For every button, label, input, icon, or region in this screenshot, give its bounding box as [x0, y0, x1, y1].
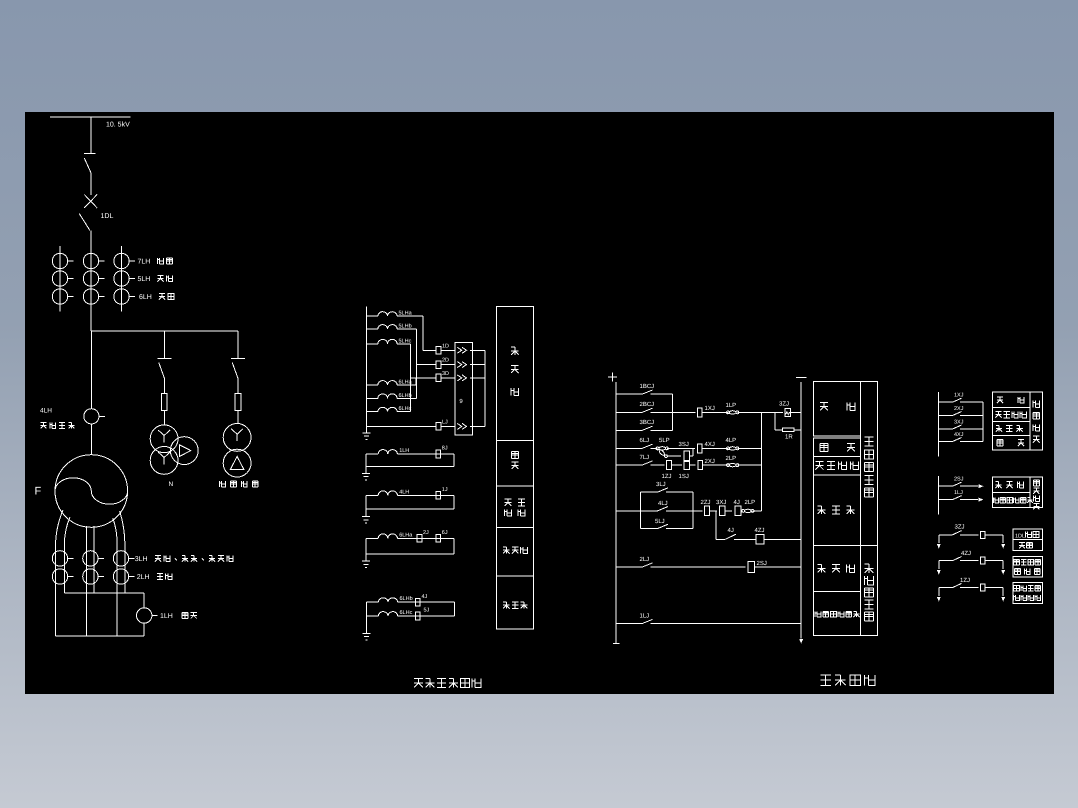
svg-text:6LJ: 6LJ: [640, 437, 650, 444]
svg-text:LJ: LJ: [442, 419, 448, 425]
svg-text:6LHa: 6LHa: [399, 380, 413, 386]
svg-text:7LJ: 7LJ: [640, 454, 650, 461]
svg-text:1ZJ: 1ZJ: [662, 473, 672, 480]
svg-text:4LP: 4LP: [726, 437, 737, 444]
svg-text:6LHb: 6LHb: [399, 393, 412, 399]
svg-text:3XJ: 3XJ: [954, 420, 964, 426]
svg-text:6LHc: 6LHc: [400, 610, 413, 616]
svg-text:5LP: 5LP: [659, 437, 670, 444]
svg-text:6J: 6J: [442, 530, 448, 536]
svg-text:6LHb: 6LHb: [400, 596, 413, 602]
svg-text:1BCJ: 1BCJ: [640, 383, 655, 390]
svg-text:2D: 2D: [442, 358, 449, 364]
svg-text:1LJ: 1LJ: [954, 490, 963, 496]
svg-text:5LHc: 5LHc: [399, 338, 412, 344]
svg-text:4ZJ: 4ZJ: [755, 527, 765, 534]
svg-text:3BCJ: 3BCJ: [640, 419, 655, 426]
svg-text:2XJ: 2XJ: [705, 458, 715, 465]
svg-text:3ZJ: 3ZJ: [779, 401, 789, 408]
svg-text:4ZJ: 4ZJ: [961, 550, 971, 557]
svg-text:2LP: 2LP: [745, 499, 756, 506]
svg-text:6LH: 6LH: [139, 294, 152, 301]
svg-text:2ZJ: 2ZJ: [701, 499, 711, 506]
svg-text:1LH: 1LH: [399, 448, 409, 454]
svg-text:6LHc: 6LHc: [399, 406, 412, 412]
svg-text:1ZJ: 1ZJ: [960, 577, 970, 584]
svg-text:2LP: 2LP: [726, 455, 737, 462]
svg-text:1SJ: 1SJ: [679, 473, 689, 480]
svg-text:9: 9: [459, 398, 463, 405]
svg-text:3LH: 3LH: [135, 556, 148, 563]
svg-text:2LH: 2LH: [137, 574, 150, 581]
svg-text:F: F: [35, 486, 42, 498]
svg-text:1LJ: 1LJ: [640, 612, 650, 619]
svg-text:4LH: 4LH: [40, 408, 52, 415]
svg-text:2SJ: 2SJ: [954, 477, 964, 483]
svg-text:1J: 1J: [442, 487, 448, 493]
svg-text:1LP: 1LP: [726, 402, 737, 409]
svg-text:1DL: 1DL: [1015, 534, 1025, 540]
svg-text:5LH: 5LH: [138, 276, 151, 283]
svg-text:5LHb: 5LHb: [399, 324, 412, 330]
svg-text:4XJ: 4XJ: [705, 441, 715, 448]
svg-text:3ZJ: 3ZJ: [955, 524, 965, 531]
svg-text:10. 5kV: 10. 5kV: [106, 121, 130, 129]
svg-text:2LJ: 2LJ: [640, 556, 650, 563]
svg-text:4LH: 4LH: [399, 489, 409, 495]
svg-text:2SJ: 2SJ: [757, 560, 767, 567]
svg-text:3D: 3D: [442, 371, 449, 377]
svg-text:4J: 4J: [422, 594, 428, 600]
svg-text:1D: 1D: [442, 343, 449, 349]
svg-text:2BCJ: 2BCJ: [640, 401, 655, 408]
svg-text:5LJ: 5LJ: [655, 518, 665, 525]
svg-text:4XJ: 4XJ: [954, 432, 964, 438]
svg-text:8J: 8J: [442, 446, 448, 452]
svg-text:3XJ: 3XJ: [716, 499, 726, 506]
svg-text:2XJ: 2XJ: [954, 406, 964, 412]
svg-text:2J: 2J: [423, 530, 429, 536]
svg-text:3SJ: 3SJ: [679, 441, 689, 448]
svg-text:6LHa: 6LHa: [399, 532, 413, 538]
svg-text:4J: 4J: [728, 527, 734, 534]
svg-text:1R: 1R: [785, 434, 793, 441]
svg-text:1XJ: 1XJ: [954, 393, 964, 399]
svg-text:5J: 5J: [424, 608, 430, 614]
svg-text:1LH: 1LH: [160, 613, 173, 620]
svg-text:7LH: 7LH: [138, 259, 151, 266]
svg-text:1XJ: 1XJ: [705, 405, 715, 412]
svg-text:3LJ: 3LJ: [656, 481, 666, 488]
svg-text:4J: 4J: [734, 499, 740, 506]
svg-text:4LJ: 4LJ: [658, 500, 668, 507]
svg-text:N: N: [169, 481, 174, 488]
svg-text:5LHa: 5LHa: [399, 311, 413, 317]
svg-text:1DL: 1DL: [101, 213, 114, 220]
